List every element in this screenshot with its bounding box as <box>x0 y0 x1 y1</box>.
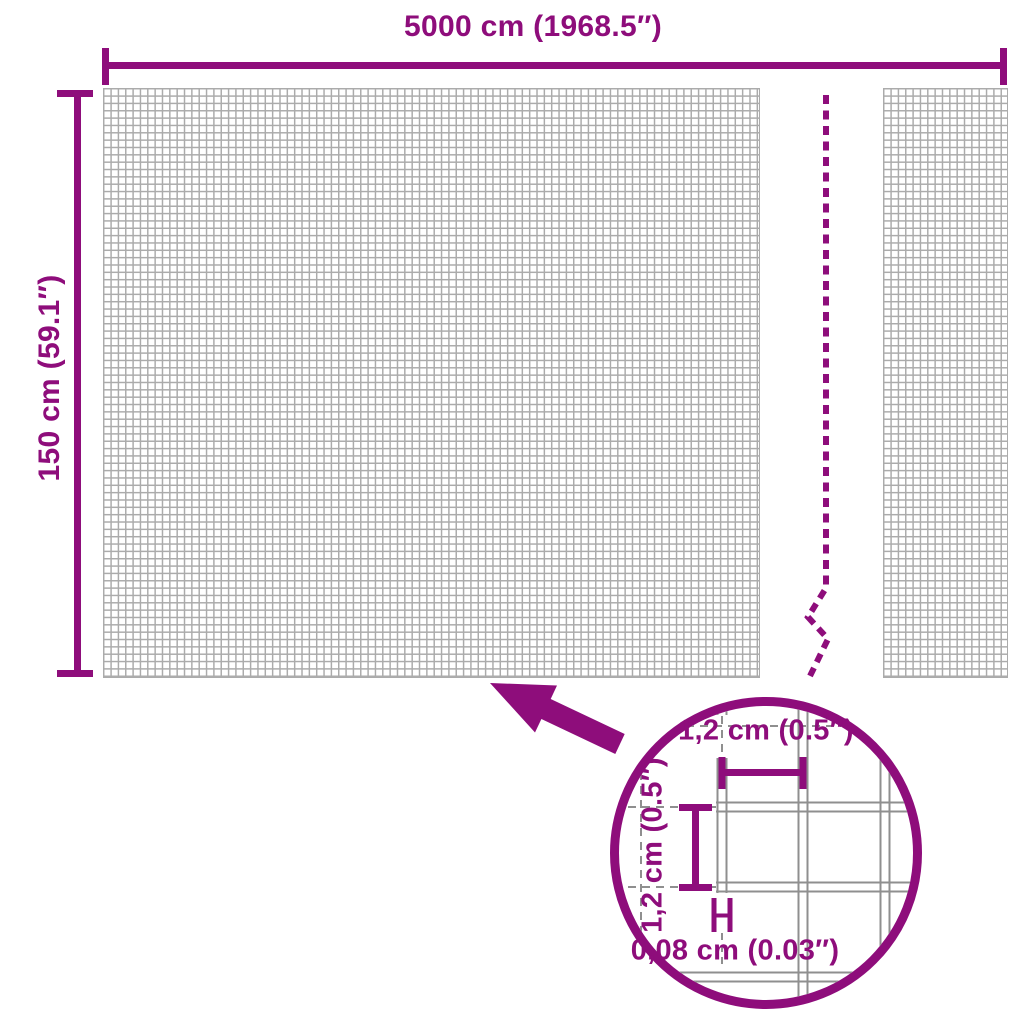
zoom-arrow-icon <box>490 683 625 754</box>
detail-wire-thickness-label: 0,08 cm (0.03″) <box>631 935 840 968</box>
height-dimension-label: 150 cm (59.1″) <box>33 274 67 481</box>
width-dimension-label: 5000 cm (1968.5″) <box>404 10 662 44</box>
product-dimension-diagram: 5000 cm (1968.5″) 150 cm (59.1″) 1,2 cm … <box>0 0 1024 1024</box>
break-line-icon <box>808 95 828 676</box>
width-dimension-line <box>102 48 1007 85</box>
diagram-shapes <box>0 0 1024 1024</box>
detail-mesh-height-label: 1,2 cm (0.5″) <box>637 757 670 933</box>
detail-mesh-width-label: 1,2 cm (0.5″) <box>678 715 854 748</box>
